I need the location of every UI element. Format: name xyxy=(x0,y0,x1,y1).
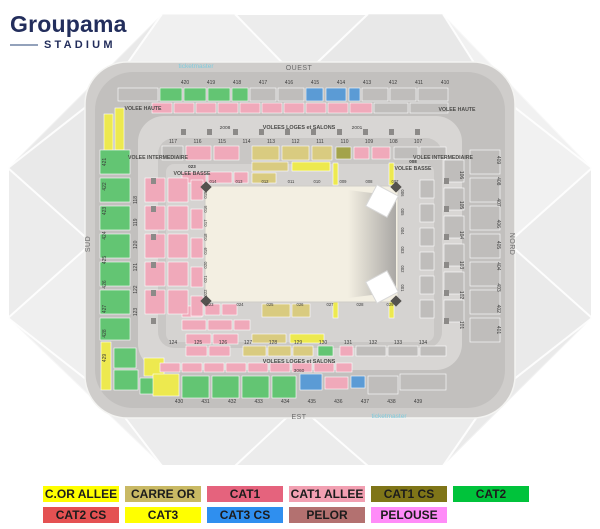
ticketmaster-watermark: ticketmaster xyxy=(371,413,407,420)
section-number: 102 xyxy=(458,291,464,300)
loges-number: 3060 xyxy=(294,368,305,374)
vomitory-mark xyxy=(444,318,449,324)
section-block[interactable] xyxy=(115,108,124,150)
section-block[interactable] xyxy=(182,363,202,372)
section-number: 428 xyxy=(102,329,108,338)
section-number: 121 xyxy=(133,263,139,272)
section-block[interactable] xyxy=(208,88,230,101)
section-block[interactable] xyxy=(191,238,203,258)
stadium-map[interactable]: 4204194184174164154144134124114101171161… xyxy=(0,0,600,480)
stadium-map-svg[interactable]: 4204194184174164154144134124114101171161… xyxy=(0,0,600,480)
section-number: 405 xyxy=(495,241,501,250)
legend-item-label: C.OR ALLEE xyxy=(45,487,117,501)
section-number: 023 xyxy=(207,302,215,307)
section-block[interactable] xyxy=(390,88,416,101)
vomitory-mark xyxy=(337,129,342,135)
section-number: 108 xyxy=(389,139,398,145)
section-block[interactable] xyxy=(420,300,434,318)
section-block[interactable] xyxy=(272,376,296,398)
section-number: 109 xyxy=(365,139,374,145)
section-block[interactable] xyxy=(212,376,239,398)
section-block[interactable] xyxy=(168,290,188,314)
loges-label: VOLEES LOGES et SALONS xyxy=(263,359,336,365)
section-number: 134 xyxy=(419,340,428,346)
legend-item-pelor: PELOR xyxy=(289,507,365,523)
section-number: 415 xyxy=(311,80,320,86)
section-number: 122 xyxy=(133,285,139,294)
section-block[interactable] xyxy=(420,252,434,270)
section-number: 131 xyxy=(344,340,353,346)
section-block[interactable] xyxy=(336,363,352,372)
legend-item-c-or-allee: C.OR ALLEE xyxy=(43,486,119,502)
section-number: 129 xyxy=(294,340,303,346)
compass-label: EST xyxy=(291,414,306,421)
tier-label: VOLEE HAUTE xyxy=(439,107,476,113)
section-number: 127 xyxy=(244,340,253,346)
section-number: 430 xyxy=(175,399,184,405)
legend-item-label: CAT2 CS xyxy=(56,508,106,522)
vomitory-mark xyxy=(151,262,156,268)
section-number: 411 xyxy=(415,80,423,86)
legend-item-cat3-cs: CAT3 CS xyxy=(207,507,283,523)
section-block[interactable] xyxy=(293,346,313,356)
section-block[interactable] xyxy=(284,103,304,113)
section-number: 420 xyxy=(181,80,190,86)
compass-label: SUD xyxy=(85,236,92,252)
section-number: 133 xyxy=(394,340,403,346)
section-number: 007 xyxy=(392,179,400,184)
section-block[interactable] xyxy=(182,320,206,330)
section-block[interactable] xyxy=(420,276,434,294)
section-number: 433 xyxy=(254,399,263,405)
section-block[interactable] xyxy=(168,206,188,230)
section-number: 117 xyxy=(169,139,177,145)
section-number: 026 xyxy=(297,302,305,307)
section-block[interactable] xyxy=(336,147,351,159)
legend-item-label: CAT1 CS xyxy=(384,487,434,501)
section-block[interactable] xyxy=(372,147,390,159)
section-number: 114 xyxy=(243,139,251,145)
loges-number: 2001 xyxy=(352,125,363,131)
section-block[interactable] xyxy=(328,103,348,113)
section-number: 412 xyxy=(389,80,398,86)
section-number: 439 xyxy=(414,399,423,405)
section-block[interactable] xyxy=(114,370,138,390)
section-number: 407 xyxy=(495,198,501,207)
vomitory-mark xyxy=(444,178,449,184)
section-block[interactable] xyxy=(153,374,179,396)
logo-text: Groupama xyxy=(10,12,127,36)
section-block[interactable] xyxy=(278,88,304,101)
section-number: 002 xyxy=(400,266,405,274)
section-block[interactable] xyxy=(418,88,448,101)
section-number: 401 xyxy=(495,326,501,335)
section-number: 436 xyxy=(334,399,343,405)
section-number: 409 xyxy=(495,156,501,165)
section-number: 105 xyxy=(458,201,464,210)
section-block[interactable] xyxy=(242,376,269,398)
section-block[interactable] xyxy=(362,88,388,101)
section-number: 010 xyxy=(314,179,322,184)
section-number: 416 xyxy=(285,80,294,86)
legend-item-cat1-allee: CAT1 ALLEE xyxy=(289,486,365,502)
vomitory-mark xyxy=(444,262,449,268)
section-block[interactable] xyxy=(186,346,207,356)
section-number: 119 xyxy=(133,218,139,226)
section-number: 022 xyxy=(203,289,208,297)
section-block[interactable] xyxy=(196,103,216,113)
section-number: 438 xyxy=(387,399,396,405)
section-number: 025 xyxy=(267,302,275,307)
section-number: 406 xyxy=(495,220,501,229)
section-number: 003 xyxy=(400,247,405,255)
vomitory-mark xyxy=(444,234,449,240)
section-number: 110 xyxy=(341,139,349,145)
section-number: 106 xyxy=(458,171,464,180)
section-block[interactable] xyxy=(282,146,309,160)
section-number: 431 xyxy=(201,399,210,405)
section-block[interactable] xyxy=(420,180,434,198)
section-number: 408 xyxy=(495,177,501,186)
tier-label: VOLEE BASSE xyxy=(395,166,432,172)
section-number: 425 xyxy=(102,256,108,265)
loges-label: VOLEES LOGES et SALONS xyxy=(263,125,336,131)
section-block[interactable] xyxy=(114,348,136,368)
legend-item-label: PELOUSE xyxy=(380,508,437,522)
section-number: 018 xyxy=(203,233,208,241)
section-number: 019 xyxy=(203,247,208,255)
section-block[interactable] xyxy=(318,346,333,356)
legend-item-label: CAT3 CS xyxy=(220,508,270,522)
section-number: 434 xyxy=(281,399,290,405)
section-block[interactable] xyxy=(186,146,211,160)
section-number: 016 xyxy=(203,205,208,213)
legend-item-label: CAT1 ALLEE xyxy=(291,487,364,501)
section-number: 132 xyxy=(369,340,378,346)
section-block[interactable] xyxy=(168,234,188,258)
vomitory-mark xyxy=(181,129,186,135)
section-block[interactable] xyxy=(306,88,323,101)
section-number: 128 xyxy=(269,340,278,346)
section-block[interactable] xyxy=(306,103,326,113)
section-block[interactable] xyxy=(333,300,338,318)
legend-item-cat1: CAT1 xyxy=(207,486,283,502)
ticketmaster-watermark: ticketmaster xyxy=(178,63,214,70)
section-block[interactable] xyxy=(240,103,260,113)
section-number: 005 xyxy=(400,209,405,217)
section-block[interactable] xyxy=(250,88,276,101)
vomitory-mark xyxy=(151,206,156,212)
vomitory-mark xyxy=(444,290,449,296)
basse-block-id: 023 xyxy=(188,164,196,169)
legend-row-2: CAT2 CSCAT3CAT3 CSPELORPELOUSE xyxy=(43,507,447,523)
legend-item-cat2-cs: CAT2 CS xyxy=(43,507,119,523)
section-block[interactable] xyxy=(333,163,338,185)
section-number: 028 xyxy=(357,302,365,307)
section-block[interactable] xyxy=(168,178,188,202)
tier-label: VOLEE INTERMEDIAIRE xyxy=(128,155,188,161)
section-block[interactable] xyxy=(160,88,182,101)
section-number: 418 xyxy=(233,80,242,86)
section-number: 426 xyxy=(102,280,108,289)
section-block[interactable] xyxy=(354,147,369,159)
compass-label: NORD xyxy=(508,233,515,256)
section-number: 421 xyxy=(102,158,108,167)
vomitory-mark xyxy=(444,206,449,212)
legend-item-cat3: CAT3 xyxy=(125,507,201,523)
section-number: 419 xyxy=(207,80,216,86)
section-block[interactable] xyxy=(368,376,398,394)
vomitory-mark xyxy=(207,129,212,135)
logo-divider-line xyxy=(10,44,38,46)
section-number: 432 xyxy=(228,399,237,405)
section-block[interactable] xyxy=(232,88,248,101)
section-number: 014 xyxy=(210,179,218,184)
section-block[interactable] xyxy=(214,146,239,160)
compass-label: OUEST xyxy=(286,65,313,72)
section-block[interactable] xyxy=(208,320,232,330)
section-number: 029 xyxy=(387,302,395,307)
section-number: 027 xyxy=(327,302,335,307)
vomitory-mark xyxy=(151,290,156,296)
section-number: 124 xyxy=(169,340,178,346)
section-number: 424 xyxy=(102,231,108,240)
section-number: 437 xyxy=(361,399,370,405)
section-block[interactable] xyxy=(218,103,238,113)
legend-item-label: CAT2 xyxy=(476,487,506,501)
section-number: 012 xyxy=(262,179,270,184)
section-number: 017 xyxy=(203,219,208,227)
section-block[interactable] xyxy=(340,346,353,356)
section-block[interactable] xyxy=(191,209,203,229)
section-number: 429 xyxy=(102,354,108,363)
section-block[interactable] xyxy=(292,162,330,171)
vomitory-mark xyxy=(151,234,156,240)
section-number: 101 xyxy=(458,321,464,330)
section-number: 009 xyxy=(340,179,348,184)
section-block[interactable] xyxy=(400,374,446,390)
section-number: 414 xyxy=(337,80,346,86)
tier-label: VOLEE INTERMEDIAIRE xyxy=(413,155,473,161)
section-number: 402 xyxy=(495,305,501,314)
section-block[interactable] xyxy=(420,228,434,246)
section-number: 015 xyxy=(203,191,208,199)
legend-item-label: CAT1 xyxy=(230,487,260,501)
section-block[interactable] xyxy=(349,88,360,101)
vomitory-mark xyxy=(151,178,156,184)
section-number: 123 xyxy=(133,308,139,317)
section-number: 020 xyxy=(203,261,208,269)
section-number: 120 xyxy=(133,240,139,249)
section-number: 008 xyxy=(366,179,374,184)
tier-label: VOLEE HAUTE xyxy=(125,106,162,112)
section-number: 404 xyxy=(495,262,501,271)
section-block[interactable] xyxy=(374,103,408,113)
section-number: 024 xyxy=(237,302,245,307)
basse-block-id: 008 xyxy=(409,159,417,164)
section-number: 011 xyxy=(288,179,295,184)
section-number: 403 xyxy=(495,283,501,292)
section-number: 417 xyxy=(259,80,268,86)
section-block[interactable] xyxy=(226,363,246,372)
section-number: 427 xyxy=(102,305,108,314)
tier-label: VOLEE BASSE xyxy=(174,171,211,177)
vomitory-mark xyxy=(363,129,368,135)
section-block[interactable] xyxy=(191,296,203,316)
section-block[interactable] xyxy=(325,377,348,389)
section-block[interactable] xyxy=(326,88,346,101)
section-block[interactable] xyxy=(222,304,237,315)
section-number: 410 xyxy=(441,80,450,86)
section-number: 112 xyxy=(292,139,300,145)
section-block[interactable] xyxy=(204,363,224,372)
section-block[interactable] xyxy=(268,346,291,356)
section-number: 021 xyxy=(203,275,208,283)
vomitory-mark xyxy=(415,129,420,135)
legend-item-cat2: CAT2 xyxy=(453,486,529,502)
section-block[interactable] xyxy=(312,146,332,160)
section-number: 107 xyxy=(414,139,423,145)
section-number: 116 xyxy=(194,139,202,145)
section-block[interactable] xyxy=(118,88,158,101)
section-number: 118 xyxy=(133,196,139,204)
section-block[interactable] xyxy=(356,346,386,356)
vomitory-mark xyxy=(389,129,394,135)
section-number: 423 xyxy=(102,207,108,216)
section-number: 422 xyxy=(102,182,108,191)
section-number: 115 xyxy=(218,139,226,145)
section-block[interactable] xyxy=(262,103,282,113)
logo-subtext: STADIUM xyxy=(44,39,116,51)
section-block[interactable] xyxy=(184,88,206,101)
section-block[interactable] xyxy=(243,346,266,356)
section-block[interactable] xyxy=(160,363,180,372)
section-block[interactable] xyxy=(252,146,279,160)
section-number: 413 xyxy=(363,80,372,86)
section-number: 013 xyxy=(236,179,244,184)
legend-item-carre-or: CARRE OR xyxy=(125,486,201,502)
section-block[interactable] xyxy=(191,180,203,200)
section-block[interactable] xyxy=(252,162,288,171)
legend-item-pelouse: PELOUSE xyxy=(371,507,447,523)
section-number: 006 xyxy=(400,190,405,198)
section-block[interactable] xyxy=(191,267,203,287)
section-number: 113 xyxy=(267,139,275,145)
legend-row-1: C.OR ALLEECARRE ORCAT1CAT1 ALLEECAT1 CSC… xyxy=(43,486,529,502)
section-number: 004 xyxy=(400,228,405,236)
section-number: 126 xyxy=(219,340,228,346)
section-number: 130 xyxy=(319,340,328,346)
section-block[interactable] xyxy=(234,320,250,330)
section-block[interactable] xyxy=(300,374,322,390)
groupama-stadium-logo: Groupama STADIUM xyxy=(10,12,127,51)
section-block[interactable] xyxy=(104,114,113,152)
vomitory-mark xyxy=(233,129,238,135)
section-block[interactable] xyxy=(182,376,209,398)
section-block[interactable] xyxy=(209,346,230,356)
legend-item-cat1-cs: CAT1 CS xyxy=(371,486,447,502)
vomitory-mark xyxy=(151,318,156,324)
section-block[interactable] xyxy=(420,346,446,356)
loges-number: 2008 xyxy=(220,125,231,131)
legend-item-label: PELOR xyxy=(306,508,347,522)
section-number: 435 xyxy=(308,399,317,405)
legend-item-label: CAT3 xyxy=(148,508,178,522)
section-block[interactable] xyxy=(168,262,188,286)
section-block[interactable] xyxy=(350,103,372,113)
section-number: 001 xyxy=(400,285,405,293)
section-block[interactable] xyxy=(351,376,365,388)
section-number: 111 xyxy=(316,139,324,145)
legend-item-label: CARRE OR xyxy=(131,487,195,501)
section-number: 103 xyxy=(458,261,464,270)
section-number: 104 xyxy=(458,231,464,240)
section-block[interactable] xyxy=(101,342,111,390)
section-block[interactable] xyxy=(420,204,434,222)
section-number: 125 xyxy=(194,340,203,346)
section-block[interactable] xyxy=(388,346,418,356)
section-block[interactable] xyxy=(174,103,194,113)
